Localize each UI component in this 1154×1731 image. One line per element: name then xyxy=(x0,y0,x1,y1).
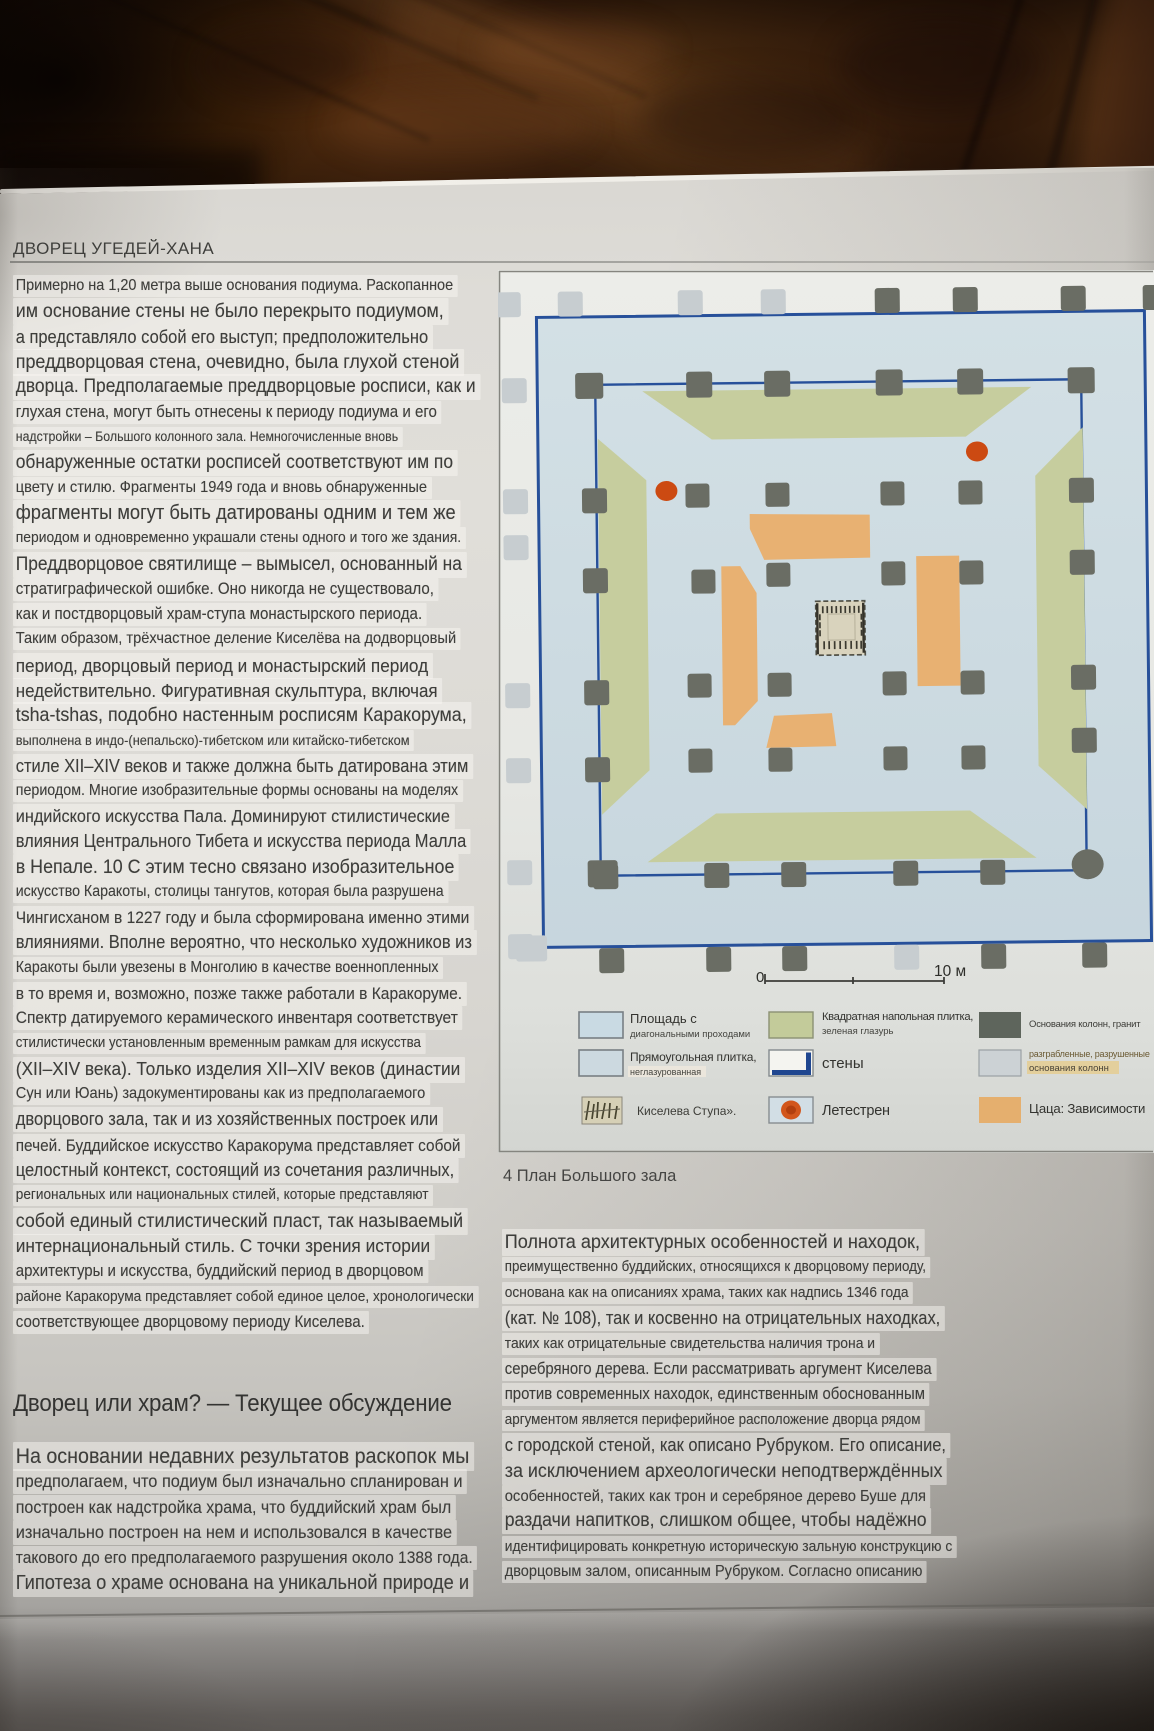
svg-text:Площадь с: Площадь с xyxy=(630,1011,697,1026)
svg-text:0: 0 xyxy=(756,969,764,986)
svg-text:Летестрен: Летестрен xyxy=(822,1103,890,1119)
svg-text:Основания колонн, гранит: Основания колонн, гранит xyxy=(1029,1019,1141,1030)
svg-text:основания колонн: основания колонн xyxy=(1029,1063,1109,1074)
svg-text:Прямоугольная плитка,: Прямоугольная плитка, xyxy=(630,1050,756,1064)
svg-text:Цаца: Зависимости: Цаца: Зависимости xyxy=(1029,1101,1145,1116)
svg-text:неглазурованная: неглазурованная xyxy=(630,1067,701,1077)
svg-text:зеленая глазурь: зеленая глазурь xyxy=(822,1026,894,1037)
svg-text:диагональными проходами: диагональными проходами xyxy=(630,1029,750,1040)
svg-text:разграбленные, разрушенные: разграбленные, разрушенные xyxy=(1029,1049,1150,1059)
svg-text:Квадратная напольная плитка,: Квадратная напольная плитка, xyxy=(822,1011,973,1023)
svg-text:стены: стены xyxy=(822,1055,864,1072)
svg-text:10 м: 10 м xyxy=(934,963,966,980)
svg-text:Киселева Ступа».: Киселева Ступа». xyxy=(637,1104,736,1118)
